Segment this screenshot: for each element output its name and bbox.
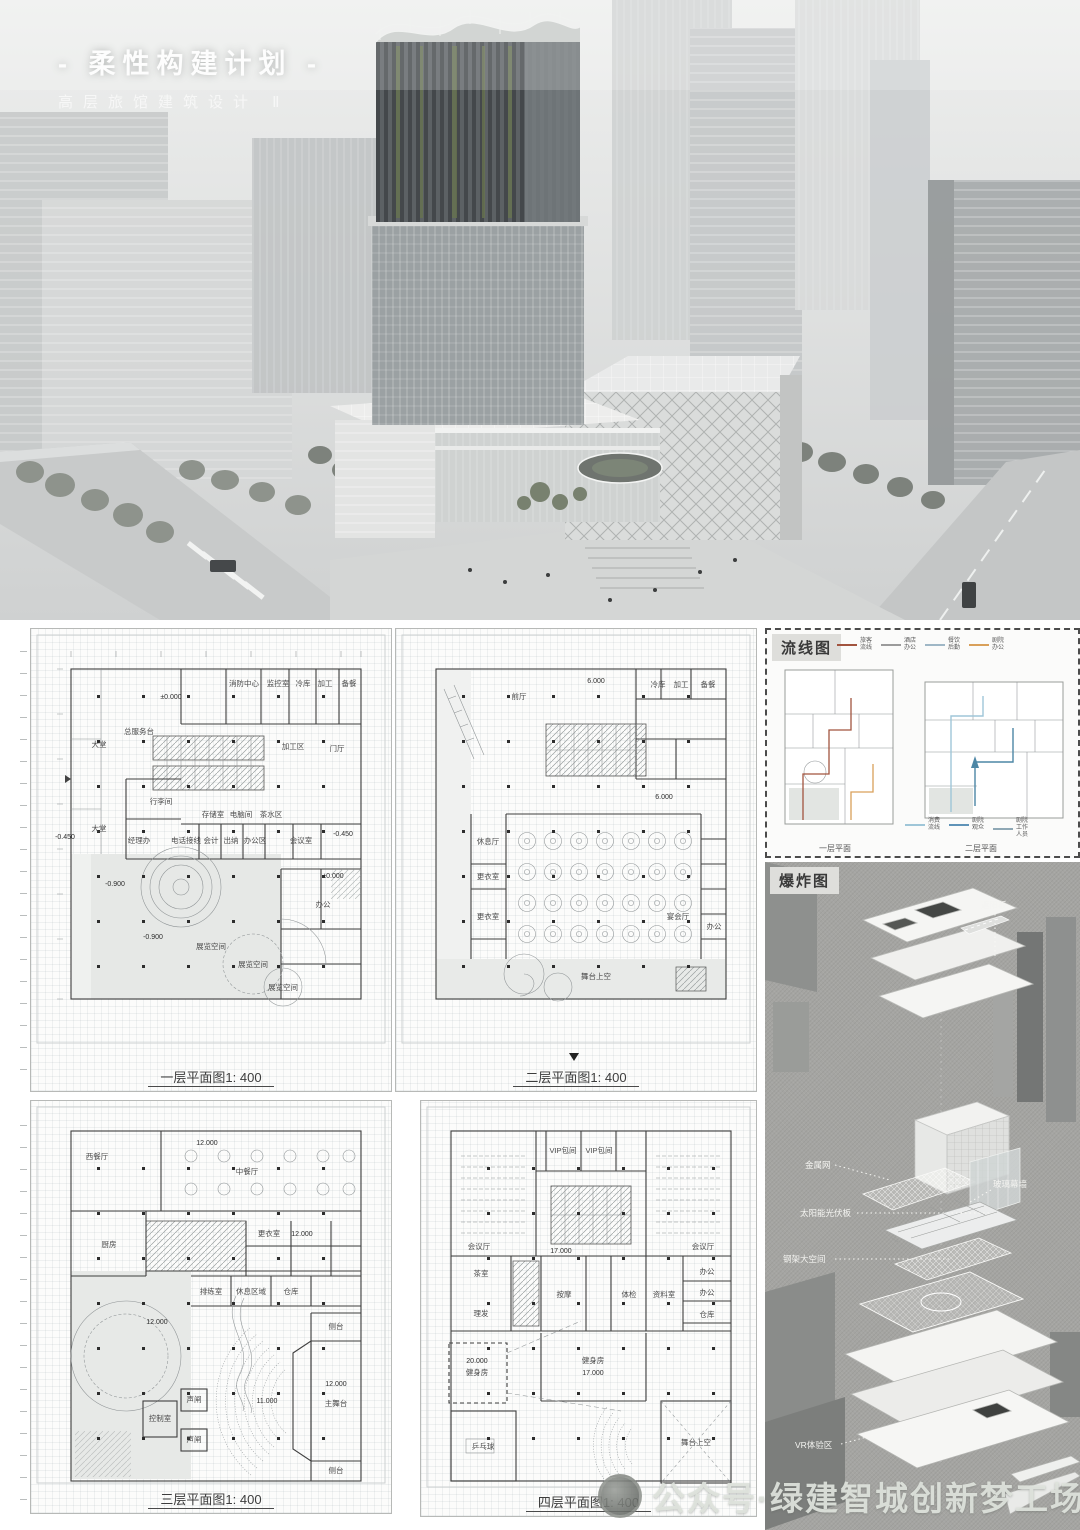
circulation-plan-2 xyxy=(917,676,1072,826)
plan1-title: 一层平面图1: 400 xyxy=(31,1067,391,1086)
room-label: 会计 xyxy=(204,835,219,845)
watermark: 公众号·绿建智城创新梦工场 xyxy=(598,1472,1080,1520)
room-label: 侧台 xyxy=(329,1465,344,1475)
circulation-legend-bottom: 消费流线 剧院观众 剧院工作人员 xyxy=(905,818,1028,839)
room-label: 加工区 xyxy=(282,741,305,751)
room-label: 声闸 xyxy=(187,1434,202,1444)
room-label: 舞台上空 xyxy=(581,971,611,981)
fourth-floor-plan-drawing: VIP包间 VIP包间 会议厅 17.000 会议厅 茶室 按摩 体检 资料室 … xyxy=(421,1101,756,1493)
second-floor-plan-drawing: 6.000 冷库 加工 备餐 前厅 休息厅 更衣室 宴会厅 更衣室 6.000 … xyxy=(396,629,756,1064)
room-label: 门厅 xyxy=(330,744,345,753)
room-label: 加工 xyxy=(318,678,333,688)
elevation-label: 12.000 xyxy=(146,1319,168,1326)
room-label: 排练室 xyxy=(200,1286,223,1296)
room-label: 更衣室 xyxy=(477,871,500,881)
hero-rendering: - 柔性构建计划 - 高层旅馆建筑设计 Ⅱ xyxy=(0,0,1080,620)
legend-item: 剧院办公 xyxy=(969,638,1004,652)
room-label: 备餐 xyxy=(701,679,716,689)
legend-line xyxy=(949,824,969,826)
circulation-diagram: 流线图 旅客流线 酒店办公 餐饮后勤 剧院办公 消费流线 剧院观众 剧院工作人员… xyxy=(765,628,1080,858)
board-title: - 柔性构建计划 - xyxy=(58,42,323,81)
plan2-title: 二层平面图1: 400 xyxy=(396,1067,756,1086)
room-label: 会议厅 xyxy=(692,1241,715,1251)
room-label: 茶室 xyxy=(474,1268,489,1278)
room-label: 乒乓球 xyxy=(472,1441,495,1451)
elevation-label: ±0.000 xyxy=(322,873,343,880)
room-label: 休息厅 xyxy=(477,836,500,846)
exploded-annotation: 玻璃幕墙 xyxy=(993,1179,1028,1189)
legend-item: 餐饮后勤 xyxy=(925,638,960,652)
room-label: 消防中心 xyxy=(229,678,259,688)
circulation-caption-1: 一层平面 xyxy=(819,843,851,854)
elevation-label: -0.900 xyxy=(105,881,125,888)
room-label: 行李间 xyxy=(150,796,173,806)
circulation-legend-top: 旅客流线 酒店办公 餐饮后勤 剧院办公 xyxy=(837,638,1004,652)
room-label: 办公 xyxy=(700,1287,715,1297)
circulation-caption-2: 二层平面 xyxy=(965,843,997,854)
room-label: 存储室 xyxy=(202,809,225,819)
room-label: 经理办 xyxy=(128,835,151,845)
elevation-label: 6.000 xyxy=(655,794,673,801)
elevation-label: 12.000 xyxy=(196,1140,218,1147)
elevation-label: -0.900 xyxy=(143,934,163,941)
room-label: 总服务台 xyxy=(124,726,154,736)
room-label: 电脑间 xyxy=(230,809,253,819)
legend-line xyxy=(969,644,989,646)
room-label: 加工 xyxy=(674,679,689,689)
exploded-annotation: 金属网 xyxy=(805,1160,831,1170)
dimension-strip xyxy=(20,1110,27,1500)
elevation-label: 20.000 xyxy=(466,1358,488,1365)
room-label: 中餐厅 xyxy=(236,1166,259,1176)
legend-item: 消费流线 xyxy=(905,818,940,832)
exploded-annotation: VR体验区 xyxy=(795,1440,833,1450)
third-floor-plan-drawing: 西餐厅 12.000 中餐厅 12.000 厨房 更衣室 排练室 休息区域 仓库… xyxy=(31,1101,391,1489)
elevation-label: 12.000 xyxy=(291,1231,313,1238)
legend-line xyxy=(881,644,901,646)
room-label: 办公区 xyxy=(244,835,267,845)
room-label: VIP包间 xyxy=(549,1145,576,1155)
room-label: 办公 xyxy=(316,899,331,909)
room-label: 体检 xyxy=(622,1289,637,1299)
room-label: 更衣室 xyxy=(477,911,500,921)
room-label: 西餐厅 xyxy=(86,1152,109,1161)
room-label: 会议厅 xyxy=(468,1241,491,1251)
room-label: 厨房 xyxy=(102,1239,117,1249)
room-label: 主舞台 xyxy=(325,1398,348,1408)
room-label: 电话接线 xyxy=(171,835,201,845)
room-label: 仓库 xyxy=(700,1309,715,1319)
legend-line xyxy=(905,824,925,826)
exploded-annotation: 遮阳板 xyxy=(981,900,1007,910)
room-label: 舞台上空 xyxy=(681,1437,711,1447)
exploded-graphic: 遮阳板 金属网 玻璃幕墙 太阳能光伏板 钢架大空间 VR体验区 xyxy=(765,862,1080,1530)
room-label: 按摩 xyxy=(557,1289,572,1299)
plan3-title: 三层平面图1: 400 xyxy=(31,1489,391,1508)
circulation-plan-1 xyxy=(775,664,903,832)
plan-fourth-floor: VIP包间 VIP包间 会议厅 17.000 会议厅 茶室 按摩 体检 资料室 … xyxy=(420,1100,757,1517)
legend-item: 酒店办公 xyxy=(881,638,916,652)
room-label: 展览空间 xyxy=(238,959,268,969)
elevation-label: -0.450 xyxy=(55,834,75,841)
circulation-title: 流线图 xyxy=(772,634,841,661)
exploded-annotation: 太阳能光伏板 xyxy=(800,1208,852,1218)
room-label: 更衣室 xyxy=(258,1228,281,1238)
room-label: 前厅 xyxy=(512,691,527,701)
room-label: 侧台 xyxy=(329,1321,344,1331)
elevation-label: 6.000 xyxy=(587,678,605,685)
elevation-label: ±0.000 xyxy=(160,694,181,701)
exploded-title: 爆炸图 xyxy=(770,867,839,894)
room-label: 理发 xyxy=(474,1308,489,1318)
elevation-label: 17.000 xyxy=(550,1248,572,1255)
room-label: 展览空间 xyxy=(196,941,226,951)
room-label: 办公 xyxy=(700,1266,715,1276)
elevation-label: 12.000 xyxy=(325,1381,347,1388)
room-label: 冷库 xyxy=(651,679,666,689)
watermark-text: 公众号·绿建智城创新梦工场 xyxy=(652,1472,1080,1520)
room-label: 展览空间 xyxy=(268,982,298,992)
first-floor-plan-drawing: 消防中心 监控室 冷库 加工 备餐 ±0.000 大堂 总服务台 行李间 存储室… xyxy=(31,629,391,1064)
watermark-logo-icon xyxy=(598,1474,642,1518)
room-label: 宴会厅 xyxy=(667,911,690,921)
room-label: 监控室 xyxy=(267,678,290,688)
room-label: 会议室 xyxy=(290,835,313,845)
room-label: 健身房 xyxy=(466,1367,489,1377)
legend-line xyxy=(837,644,857,646)
elevation-label: 17.000 xyxy=(582,1370,604,1377)
elevation-label: -0.450 xyxy=(333,831,353,838)
elevation-label: 11.000 xyxy=(257,1398,278,1405)
room-label: 冷库 xyxy=(296,678,311,688)
board-title-block: - 柔性构建计划 - 高层旅馆建筑设计 Ⅱ xyxy=(58,42,323,112)
board-subtitle: 高层旅馆建筑设计 Ⅱ xyxy=(58,91,323,112)
exploded-annotation: 钢架大空间 xyxy=(783,1254,826,1264)
room-label: 健身房 xyxy=(582,1355,605,1365)
plan-second-floor: 6.000 冷库 加工 备餐 前厅 休息厅 更衣室 宴会厅 更衣室 6.000 … xyxy=(395,628,757,1092)
room-label: 声闸 xyxy=(187,1394,202,1404)
room-label: 大堂 xyxy=(92,739,107,749)
legend-line xyxy=(925,644,945,646)
legend-line xyxy=(993,828,1013,830)
exploded-axon-diagram: 爆炸图 xyxy=(765,862,1080,1530)
room-label: 备餐 xyxy=(342,678,357,688)
room-label: 控制室 xyxy=(149,1413,172,1423)
room-label: VIP包间 xyxy=(585,1145,612,1155)
dimension-strip xyxy=(20,640,27,1070)
room-label: 茶水区 xyxy=(260,809,283,819)
room-label: 出纳 xyxy=(224,835,239,845)
room-label: 资料室 xyxy=(653,1289,676,1299)
room-label: 休息区域 xyxy=(236,1286,266,1296)
legend-item: 旅客流线 xyxy=(837,638,872,652)
room-label: 办公 xyxy=(707,921,722,931)
room-label: 仓库 xyxy=(284,1286,299,1296)
legend-item: 剧院观众 xyxy=(949,818,984,832)
legend-item: 剧院工作人员 xyxy=(993,818,1028,839)
plan-third-floor: 西餐厅 12.000 中餐厅 12.000 厨房 更衣室 排练室 休息区域 仓库… xyxy=(30,1100,392,1514)
room-label: 大堂 xyxy=(92,823,107,833)
plan-first-floor: 消防中心 监控室 冷库 加工 备餐 ±0.000 大堂 总服务台 行李间 存储室… xyxy=(30,628,392,1092)
